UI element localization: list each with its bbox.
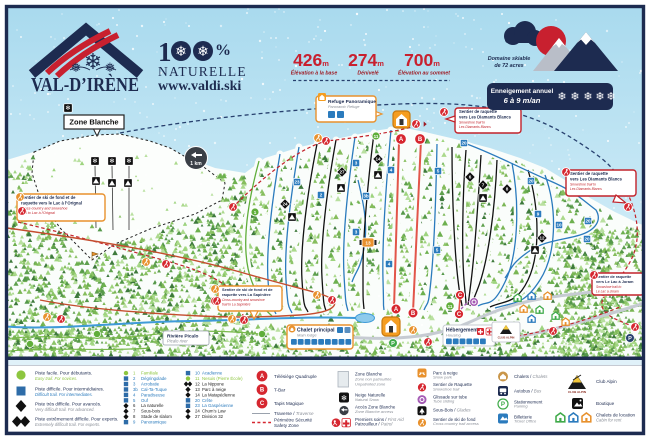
- svg-text:Nesuis (Pierre École): Nesuis (Pierre École): [202, 376, 243, 381]
- svg-text:20: 20: [585, 219, 591, 224]
- svg-text:4: 4: [388, 262, 391, 267]
- svg-text:A: A: [399, 137, 404, 143]
- svg-text:20: 20: [461, 141, 467, 146]
- svg-text:trail to La Sapinière: trail to La Sapinière: [222, 302, 251, 306]
- svg-text:3: 3: [355, 161, 358, 166]
- svg-text:Housing: Housing: [446, 333, 461, 338]
- svg-text:8: 8: [506, 187, 509, 192]
- svg-text:14: 14: [375, 157, 381, 162]
- svg-text:Élévation à la base: Élévation à la base: [291, 69, 338, 77]
- svg-text:20: 20: [528, 179, 534, 184]
- svg-text:5: 5: [437, 169, 440, 174]
- svg-text:Safety Zone: Safety Zone: [274, 423, 299, 428]
- svg-text:Club Alpin: Club Alpin: [596, 379, 617, 384]
- svg-text:Panoramique: Panoramique: [141, 420, 167, 425]
- svg-text:NATURELLE: NATURELLE: [158, 64, 247, 79]
- svg-text:13: 13: [365, 241, 371, 247]
- svg-text:vers Les Diamants Blancs: vers Les Diamants Blancs: [459, 114, 512, 119]
- svg-text:7: 7: [482, 183, 485, 188]
- svg-text:Unpatrolled zone: Unpatrolled zone: [355, 381, 386, 386]
- svg-text:5: 5: [436, 248, 439, 253]
- svg-text:Tapis Magique: Tapis Magique: [274, 401, 304, 406]
- svg-text:❄: ❄: [570, 91, 579, 103]
- svg-text:Familiale: Familiale: [141, 371, 159, 376]
- svg-text:Piste très difficile. Pour ava: Piste très difficile. Pour avancés.: [35, 402, 101, 407]
- svg-text:10: 10: [556, 223, 562, 228]
- svg-text:2: 2: [320, 193, 323, 198]
- svg-text:Easy trail. For novices.: Easy trail. For novices.: [35, 376, 77, 381]
- svg-text:P: P: [391, 341, 395, 347]
- svg-text:27: 27: [195, 414, 200, 419]
- svg-text:Crête: Crête: [202, 398, 213, 403]
- svg-text:Panoramic Refuge: Panoramic Refuge: [328, 105, 359, 109]
- svg-text:C: C: [260, 401, 265, 407]
- svg-text:Tube sliding: Tube sliding: [433, 399, 455, 404]
- svg-text:11: 11: [448, 304, 453, 309]
- svg-text:Parking: Parking: [514, 404, 528, 409]
- svg-text:23: 23: [294, 180, 300, 185]
- svg-text:Zone Blanche access: Zone Blanche access: [354, 409, 393, 414]
- svg-text:4: 4: [390, 168, 393, 173]
- svg-text:Main lodge: Main lodge: [297, 333, 317, 338]
- svg-text:20: 20: [584, 237, 590, 242]
- svg-text:9: 9: [537, 212, 540, 217]
- svg-text:1 km: 1 km: [190, 161, 202, 167]
- svg-text:Picalo river: Picalo river: [167, 339, 188, 344]
- svg-text:P: P: [501, 401, 505, 408]
- svg-text:Parc à neige: Parc à neige: [202, 387, 227, 392]
- svg-text:CLUB ALPIN: CLUB ALPIN: [568, 390, 586, 394]
- svg-text:www.valdi.ski: www.valdi.ski: [158, 79, 241, 94]
- svg-text:23: 23: [195, 403, 200, 408]
- svg-text:vers Les Diamants Blancs: vers Les Diamants Blancs: [570, 176, 623, 181]
- svg-text:13: 13: [195, 387, 200, 392]
- svg-text:Division 32: Division 32: [202, 414, 224, 419]
- svg-text:Sous-bois: Sous-bois: [141, 409, 160, 414]
- svg-text:A: A: [260, 374, 265, 380]
- svg-text:raquette vers le Lac à l’Orign: raquette vers le Lac à l’Orignal: [21, 200, 82, 205]
- svg-text:27: 27: [339, 170, 345, 175]
- svg-text:14: 14: [195, 392, 200, 397]
- svg-text:La Nippone: La Nippone: [202, 381, 225, 386]
- svg-text:Stade de slalom: Stade de slalom: [141, 414, 172, 419]
- svg-text:Extremely difficult trail. For: Extremely difficult trail. For experts.: [35, 422, 100, 427]
- svg-text:P: P: [628, 336, 632, 342]
- svg-text:Snowshoe trail to: Snowshoe trail to: [570, 183, 596, 187]
- svg-text:12: 12: [539, 236, 545, 241]
- svg-text:raquette vers La Sapinière: raquette vers La Sapinière: [222, 292, 271, 297]
- svg-text:La naturelle: La naturelle: [141, 403, 164, 408]
- svg-text:Acadienne: Acadienne: [202, 371, 223, 376]
- svg-text:6: 6: [469, 175, 472, 180]
- svg-text:CLUB ALPIN: CLUB ALPIN: [498, 336, 515, 340]
- svg-text:1: 1: [254, 210, 257, 215]
- svg-text:1: 1: [158, 37, 172, 67]
- svg-text:Natural Snow: Natural Snow: [355, 397, 380, 402]
- svg-text:24: 24: [195, 409, 200, 414]
- svg-text:3: 3: [355, 230, 358, 235]
- svg-text:Cal-Ta-Tuque: Cal-Ta-Tuque: [141, 387, 167, 392]
- svg-text:Élévation au sommet: Élévation au sommet: [398, 69, 450, 77]
- svg-text:Ouf: Ouf: [141, 398, 149, 403]
- svg-text:❄: ❄: [84, 49, 102, 74]
- svg-text:6 à 9 m/an: 6 à 9 m/an: [504, 96, 541, 105]
- svg-text:Chalets / Chalets: Chalets / Chalets: [514, 374, 548, 379]
- svg-text:C: C: [457, 312, 462, 318]
- svg-text:Boutique: Boutique: [596, 401, 615, 406]
- svg-text:Snow park: Snow park: [433, 375, 453, 380]
- svg-text:Piste extrêmement difficile. P: Piste extrêmement difficile. Pour expert…: [35, 417, 118, 422]
- svg-text:24: 24: [282, 202, 288, 207]
- svg-text:❄: ❄: [126, 157, 132, 165]
- svg-text:Périmètre Sécurité: Périmètre Sécurité: [274, 418, 312, 423]
- svg-text:Sous-Bois / Glades: Sous-Bois / Glades: [433, 408, 471, 413]
- svg-text:Télésiège Quadruple: Télésiège Quadruple: [274, 374, 317, 379]
- svg-text:12: 12: [195, 381, 200, 386]
- svg-text:❄: ❄: [175, 43, 187, 59]
- svg-text:❄: ❄: [92, 157, 98, 165]
- svg-text:La Matapédienne: La Matapédienne: [202, 392, 236, 397]
- svg-text:Snowshoe trail: Snowshoe trail: [433, 387, 459, 392]
- svg-text:Difficult trail. For intermedi: Difficult trail. For intermediates.: [35, 392, 93, 397]
- svg-text:❄: ❄: [65, 104, 71, 112]
- svg-text:La Gaspésienne: La Gaspésienne: [202, 403, 234, 408]
- svg-text:Piste facile. Pour débutants.: Piste facile. Pour débutants.: [35, 371, 92, 376]
- svg-text:Cabin for rent: Cabin for rent: [596, 418, 622, 423]
- svg-text:❄: ❄: [606, 91, 615, 103]
- svg-text:A: A: [394, 307, 399, 313]
- svg-text:❄: ❄: [595, 91, 604, 103]
- svg-text:Traverse / Traverse: Traverse / Traverse: [274, 411, 314, 416]
- svg-text:B: B: [411, 311, 416, 317]
- svg-text:❄: ❄: [341, 394, 347, 403]
- svg-text:Piste difficile. Pour interméd: Piste difficile. Pour intermédiaires.: [35, 387, 104, 392]
- svg-text:❄: ❄: [197, 43, 209, 59]
- svg-text:3b: 3b: [133, 387, 138, 392]
- svg-text:3b: 3b: [363, 194, 369, 199]
- svg-text:vers Le Lac à Joram: vers Le Lac à Joram: [596, 279, 634, 284]
- svg-text:T-Bar: T-Bar: [274, 388, 286, 393]
- svg-text:❄: ❄: [557, 91, 566, 103]
- svg-text:Enneigement annuel: Enneigement annuel: [491, 88, 554, 95]
- svg-text:Cross country trail access: Cross country trail access: [433, 421, 479, 426]
- svg-text:Ticket Office: Ticket Office: [514, 419, 537, 424]
- svg-text:Patrouilleur / Patrol: Patrouilleur / Patrol: [355, 422, 393, 427]
- svg-text:Autobus / Bus: Autobus / Bus: [514, 389, 542, 394]
- svg-text:Snowshoe trail to: Snowshoe trail to: [459, 121, 485, 125]
- svg-text:20: 20: [195, 398, 200, 403]
- svg-text:Dénivelé: Dénivelé: [357, 71, 378, 77]
- svg-text:Very difficult trail. For adva: Very difficult trail. For advanced.: [35, 407, 95, 412]
- svg-text:11: 11: [195, 376, 200, 381]
- svg-text:Domaine skiable: Domaine skiable: [488, 56, 531, 62]
- svg-text:❄: ❄: [583, 91, 592, 103]
- svg-text:10: 10: [195, 371, 200, 376]
- svg-text:11: 11: [374, 134, 379, 139]
- svg-text:Les Diamants Blancs: Les Diamants Blancs: [459, 125, 491, 129]
- svg-text:Cross-country and snowshoe: Cross-country and snowshoe: [21, 207, 68, 211]
- svg-text:Acrobatie: Acrobatie: [141, 381, 160, 386]
- svg-text:Paradiseuse: Paradiseuse: [141, 392, 165, 397]
- svg-text:%: %: [215, 42, 231, 59]
- svg-text:VAL-D’IRÈNE: VAL-D’IRÈNE: [31, 73, 139, 96]
- svg-text:Chum’s Law: Chum’s Law: [202, 409, 226, 414]
- svg-text:C: C: [458, 293, 463, 299]
- svg-text:Zone Blanche: Zone Blanche: [69, 118, 118, 127]
- svg-text:B: B: [260, 388, 265, 394]
- svg-text:❄: ❄: [109, 157, 115, 165]
- svg-text:Les Diamants Blancs: Les Diamants Blancs: [570, 187, 602, 191]
- svg-text:de 72 acres: de 72 acres: [494, 63, 523, 69]
- svg-text:B: B: [418, 137, 423, 143]
- svg-text:Dégringolade: Dégringolade: [141, 376, 167, 381]
- svg-text:Le Lac à Joram: Le Lac à Joram: [596, 289, 619, 293]
